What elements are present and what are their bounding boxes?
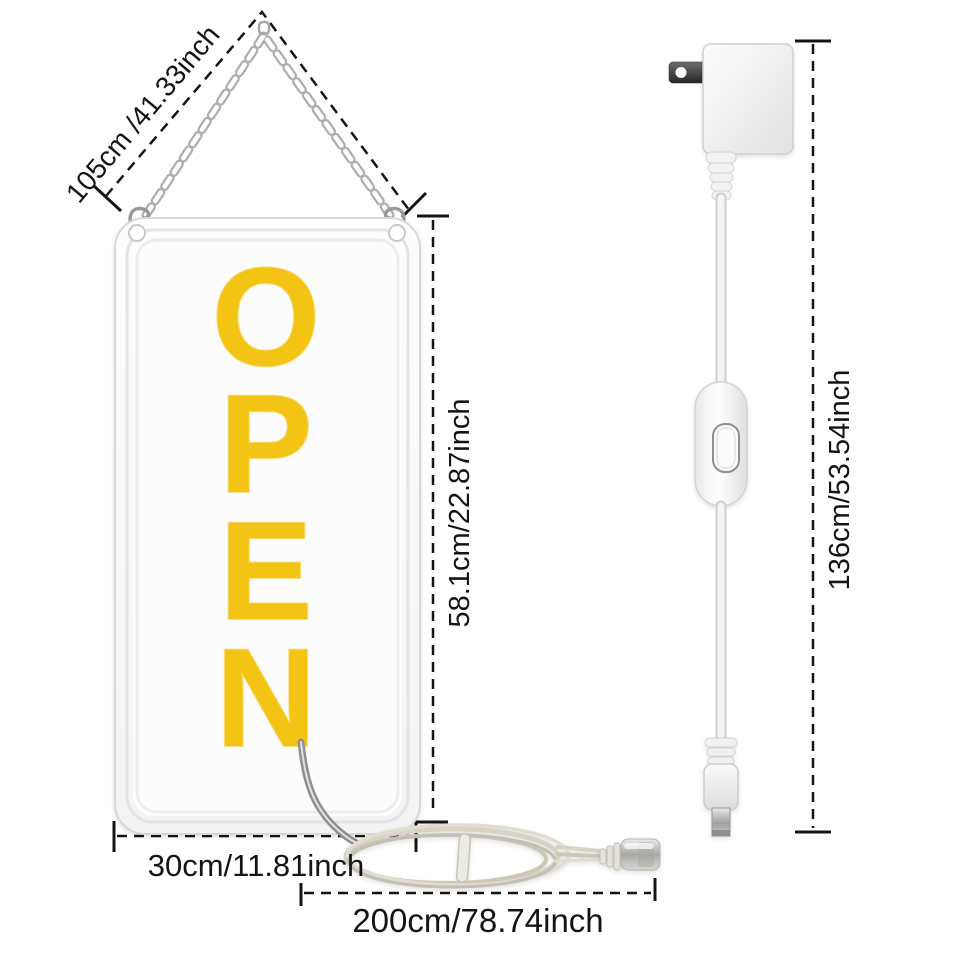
cord-length-label: 200cm/78.74inch (352, 902, 603, 939)
dc-plug (704, 738, 738, 836)
plug-tip-band (712, 830, 730, 836)
strain-rib (710, 173, 733, 182)
adapter-cable-length-label: 136cm/53.54inch (824, 370, 856, 591)
connector-rib-1 (600, 849, 606, 864)
coil-loop-4 (349, 835, 555, 887)
inline-switch (695, 382, 747, 506)
chain-length-label: 105cm /41.33inch (60, 19, 226, 208)
hanging-chain (130, 22, 404, 231)
prong-hole-icon (676, 67, 687, 78)
connector-rib-2 (607, 846, 613, 867)
plug-prong-icon (669, 62, 706, 83)
plug-rib (707, 748, 735, 756)
strain-rib (706, 152, 736, 163)
coil-lead-3 (554, 859, 602, 861)
product-dimension-diagram: O P E N (0, 0, 960, 960)
sign-text-open: O P E N (212, 238, 321, 776)
power-cord-coil (346, 825, 602, 887)
left-hanging-hole-icon (129, 225, 145, 241)
diagram-canvas: O P E N (0, 0, 960, 960)
plug-body (704, 764, 738, 810)
sign-height-label: 58.1cm/22.87inch (444, 399, 476, 628)
connector-rib-3 (614, 843, 620, 870)
adapter-body (703, 44, 793, 154)
strain-rib (711, 182, 732, 191)
connector-highlight (624, 843, 654, 849)
sign-width-label: 30cm/11.81inch (148, 848, 365, 883)
plug-rib (705, 738, 737, 747)
coil-lead-1 (556, 847, 602, 851)
right-hanging-hole-icon (389, 225, 405, 241)
cord-end-connector (600, 839, 660, 870)
coil-lead-2 (556, 854, 602, 856)
power-adapter (669, 44, 793, 836)
strain-rib (708, 163, 734, 173)
coil-tie-wrap (456, 834, 470, 883)
open-sign: O P E N (115, 218, 420, 834)
